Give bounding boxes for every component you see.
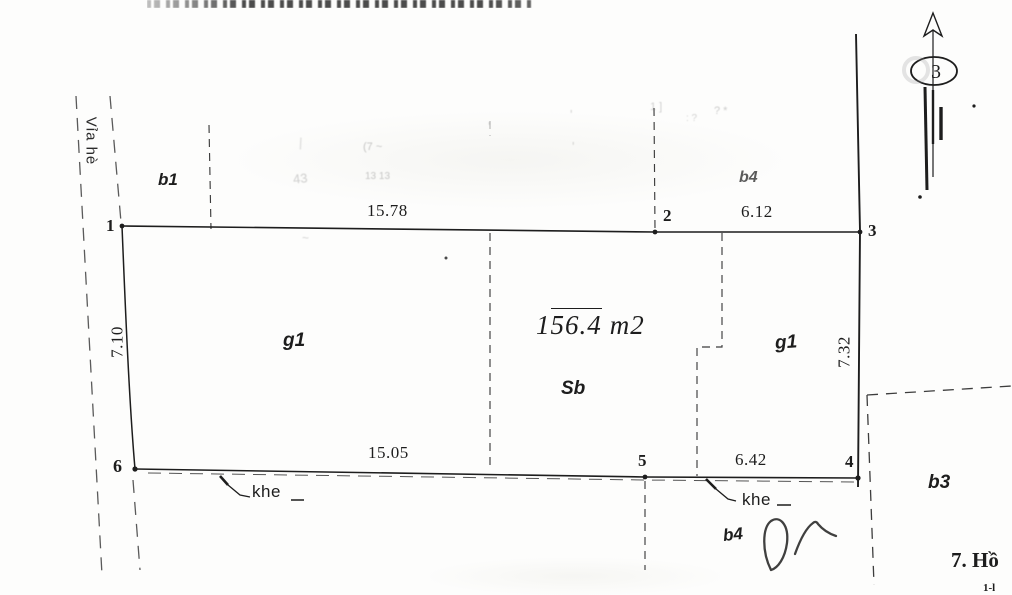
stray-dot <box>918 195 922 199</box>
khe-label-2: khe <box>742 491 771 508</box>
point-dot <box>132 466 137 471</box>
scan-smudge: 13 13 <box>365 172 390 182</box>
scan-smudge: | <box>299 136 303 149</box>
dimension-bottom-left: 15.05 <box>368 444 409 461</box>
zone-label-b4-top: b4 <box>739 170 758 186</box>
survey-linework <box>0 0 1012 595</box>
scan-smudge: (7 ~ <box>363 142 382 153</box>
stray-dot <box>972 104 975 107</box>
scan-smudge: : ? <box>686 114 697 124</box>
dimension-top-right: 6.12 <box>741 203 773 220</box>
scan-smudge: ' <box>570 108 572 121</box>
point-label-6: 6 <box>113 457 122 475</box>
point-dot <box>120 224 125 229</box>
parcel-boundary <box>122 34 860 487</box>
zone-label-g1-left: g1 <box>283 331 305 350</box>
zone-label-g1-right: g1 <box>774 332 797 353</box>
corner-text-fragment-2: 1-l <box>983 583 995 594</box>
khe-leader <box>706 479 716 489</box>
point-dot <box>855 475 860 480</box>
point-label-1: 1 <box>106 217 115 234</box>
dimension-right-side: 7.32 <box>836 336 853 368</box>
survey-sketch-page: Vỉa hè b1 b4 g1 g1 Sb b3 b4 156.4m2 15.7… <box>0 0 1012 595</box>
boundary-top-edge <box>122 226 860 232</box>
area-label: 156.4m2 <box>536 312 645 339</box>
point-label-4: 4 <box>845 453 854 470</box>
boundary-right-edge <box>856 34 860 487</box>
stray-dot <box>445 257 448 260</box>
point-dot <box>643 475 648 480</box>
zone-label-sb: Sb <box>561 379 585 398</box>
signature-scribble <box>764 519 836 570</box>
north-arrow <box>904 13 976 199</box>
dimension-top-left: 15.78 <box>367 202 408 219</box>
dimension-left-side: 7.10 <box>109 326 126 358</box>
scan-smudge: ~ <box>302 232 309 244</box>
scan-smudge: 43 <box>292 171 308 185</box>
zone-label-b1: b1 <box>158 171 178 188</box>
corner-text-fragment: 7. Hồ <box>951 550 999 571</box>
khe-label-1: khe <box>252 483 281 500</box>
jogged-dashed-line <box>697 233 722 476</box>
scan-smudge: ? * <box>714 106 727 117</box>
zone-label-b4-bottom: b4 <box>722 525 744 544</box>
point-label-2: 2 <box>663 207 672 224</box>
vertex-dots <box>120 224 863 481</box>
scan-smudge: ' <box>488 120 490 133</box>
sidewalk-label: Vỉa hè <box>84 117 99 166</box>
north-arrow-number: 3 <box>931 62 941 82</box>
point-label-3: 3 <box>868 222 877 239</box>
point-label-5: 5 <box>638 452 647 469</box>
scan-smudge: ' <box>572 140 574 153</box>
dimension-bottom-right: 6.42 <box>735 451 767 468</box>
point-dot <box>858 230 863 235</box>
khe-leader <box>220 476 228 485</box>
zone-label-b3: b3 <box>928 473 950 492</box>
boundary-bottom-edge <box>135 469 858 478</box>
point-dot <box>653 230 658 235</box>
scan-smudge: 1 ] <box>650 102 662 113</box>
area-overlined-value: 56.4 <box>551 308 602 340</box>
area-unit: m2 <box>610 310 645 340</box>
area-prefix: 1 <box>536 310 551 340</box>
